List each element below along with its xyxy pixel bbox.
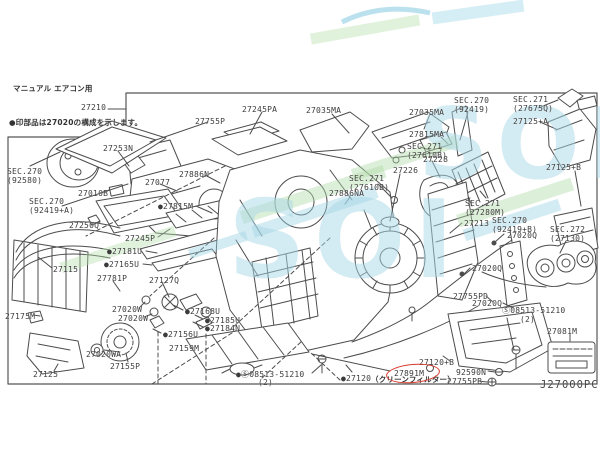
part-label: SEC.270 (92419) <box>454 96 489 114</box>
part-label: ●27156U <box>163 330 198 339</box>
part-label: 27159M <box>169 344 199 353</box>
part-label: 27020WA <box>86 350 121 359</box>
part-label: 27245P <box>125 234 155 243</box>
part-label: 27077 <box>145 178 170 187</box>
part-label: ●27815M <box>158 202 193 211</box>
assembly-number-label: 27210 <box>81 103 106 112</box>
part-label: ●27181U <box>107 247 142 256</box>
part-label: 27035MA <box>409 108 444 117</box>
part-label: 92590N <box>456 368 486 377</box>
part-label: Ⓢ08513-51210 <box>502 306 565 315</box>
part-label: SEC.272 (27130) <box>550 225 585 243</box>
part-label: ●27168U <box>185 307 220 316</box>
part-label: 27125+B <box>546 163 581 172</box>
part-label: ●27165U <box>104 260 139 269</box>
part-label: 27127Q <box>149 276 179 285</box>
part-label: 27253N <box>103 144 133 153</box>
part-label: 27081M <box>547 327 577 336</box>
diagram-title: マニュアル エアコン用 <box>13 85 93 94</box>
parts-diagram: SOI SOI マニュアル エアコン用 27210 ●印部品は27020の構成を… <box>0 0 600 450</box>
diagram-note: ●印部品は27020の構成を示します。 <box>9 119 142 128</box>
part-label: 27020Q <box>472 264 502 273</box>
part-label: 27115 <box>53 265 78 274</box>
part-label: 27010B <box>78 189 108 198</box>
part-label: (2) <box>520 315 535 324</box>
part-label: 27781P <box>97 274 127 283</box>
part-label: 27175M <box>5 312 35 321</box>
part-label: 27886N <box>179 170 209 179</box>
part-label: 27815MA <box>409 130 444 139</box>
part-label: 27213 <box>464 219 489 228</box>
part-label: SEC.270 (92580) <box>7 167 42 185</box>
part-label: SEC.270 (92419+B) <box>492 216 537 234</box>
part-label: 27035MA <box>306 106 341 115</box>
part-label: 27228 <box>423 155 448 164</box>
part-label: 27020W <box>112 305 142 314</box>
part-label: 27125+A <box>513 117 548 126</box>
part-label: ●27184N <box>205 324 240 333</box>
part-label: ●27120 <box>341 374 371 383</box>
part-label: SEC.270 (92419+A) <box>29 197 74 215</box>
part-label: (2) <box>258 378 273 387</box>
part-label: 27125 <box>33 370 58 379</box>
part-label: 27226 <box>393 166 418 175</box>
part-label: 27245PA <box>242 105 277 114</box>
diagram-code: J27000PC <box>540 379 599 391</box>
part-label: 27020W <box>118 314 148 323</box>
part-label: 27250Q <box>69 221 99 230</box>
part-label: 27755PD <box>453 292 488 301</box>
part-label: SEC.271 (27280M) <box>465 199 505 217</box>
part-label: 27155P <box>110 362 140 371</box>
part-label: 27886NA <box>329 189 364 198</box>
part-label: 27755P <box>195 117 225 126</box>
part-label: SEC.271 (27675Q) <box>513 95 553 113</box>
